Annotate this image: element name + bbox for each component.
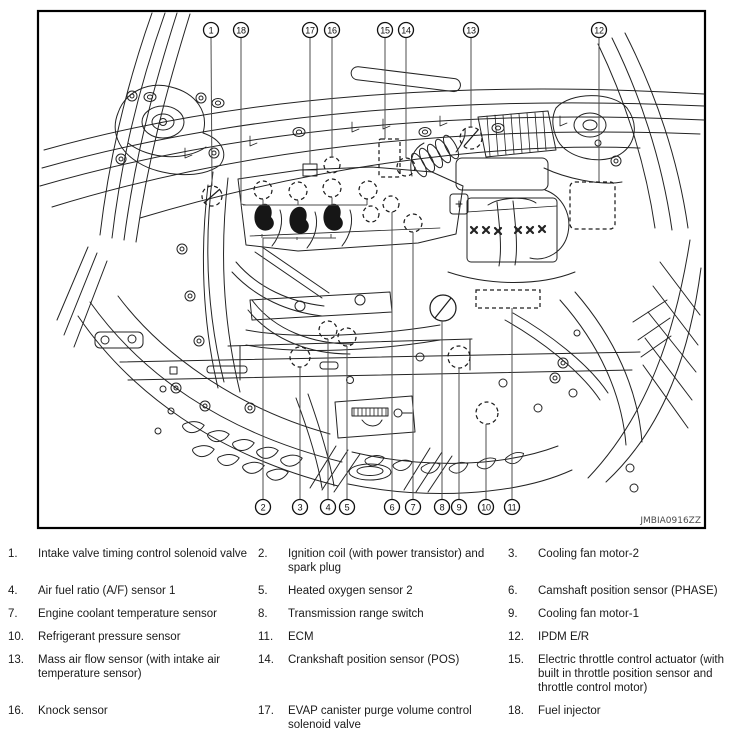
legend-item-number: 2. (258, 547, 288, 561)
svg-text:6: 6 (390, 502, 395, 512)
legend-item-number: 16. (8, 704, 38, 718)
legend-item-number: 6. (508, 584, 538, 598)
callout-10: 10 (479, 500, 494, 515)
callout-13: 13 (464, 23, 479, 38)
legend-item-text: Mass air flow sensor (with intake air te… (38, 653, 248, 681)
svg-text:16: 16 (327, 25, 337, 35)
callout-18: 18 (234, 23, 249, 38)
legend-item-text: Cooling fan motor-2 (538, 547, 734, 561)
legend-item-2: 2.Ignition coil (with power transistor) … (258, 547, 508, 575)
legend-item-text: Knock sensor (38, 704, 248, 718)
callout-9: 9 (452, 500, 467, 515)
callout-17: 17 (303, 23, 318, 38)
svg-text:10: 10 (481, 502, 491, 512)
legend-item-text: Fuel injector (538, 704, 734, 718)
legend-item-text: Intake valve timing control solenoid val… (38, 547, 248, 561)
legend-item-text: Crankshaft position sensor (POS) (288, 653, 498, 667)
legend-item-number: 14. (258, 653, 288, 667)
callout-4: 4 (321, 500, 336, 515)
svg-text:9: 9 (457, 502, 462, 512)
legend-item-3: 3.Cooling fan motor-2 (508, 547, 744, 575)
legend-item-4: 4.Air fuel ratio (A/F) sensor 1 (8, 584, 258, 598)
legend-item-number: 3. (508, 547, 538, 561)
legend-item-8: 8.Transmission range switch (258, 607, 508, 621)
legend-item-text: Ignition coil (with power transistor) an… (288, 547, 498, 575)
svg-text:18: 18 (236, 25, 246, 35)
callout-5: 5 (340, 500, 355, 515)
legend-item-15: 15.Electric throttle control actuator (w… (508, 653, 744, 695)
svg-text:3: 3 (298, 502, 303, 512)
engine-compartment-diagram: 1 18 17 16 15 14 13 12 2 3 4 5 6 7 8 9 1… (36, 9, 708, 530)
legend-item-14: 14.Crankshaft position sensor (POS) (258, 653, 508, 695)
svg-text:12: 12 (594, 25, 604, 35)
legend-item-number: 1. (8, 547, 38, 561)
svg-text:8: 8 (440, 502, 445, 512)
callout-14: 14 (399, 23, 414, 38)
legend-item-text: EVAP canister purge volume control solen… (288, 704, 498, 732)
legend-item-7: 7.Engine coolant temperature sensor (8, 607, 258, 621)
legend-item-number: 18. (508, 704, 538, 718)
callout-15: 15 (378, 23, 393, 38)
legend-item-9: 9.Cooling fan motor-1 (508, 607, 744, 621)
callout-1: 1 (204, 23, 219, 38)
callout-3: 3 (293, 500, 308, 515)
legend: 1.Intake valve timing control solenoid v… (0, 547, 744, 732)
legend-item-number: 7. (8, 607, 38, 621)
legend-item-number: 13. (8, 653, 38, 667)
figure-frame (38, 11, 705, 528)
callout-12: 12 (592, 23, 607, 38)
callout-2: 2 (256, 500, 271, 515)
legend-item-number: 10. (8, 630, 38, 644)
svg-text:1: 1 (209, 25, 214, 35)
legend-item-number: 4. (8, 584, 38, 598)
legend-item-1: 1.Intake valve timing control solenoid v… (8, 547, 258, 575)
legend-item-text: Electric throttle control actuator (with… (538, 653, 734, 695)
legend-item-text: IPDM E/R (538, 630, 734, 644)
legend-item-6: 6.Camshaft position sensor (PHASE) (508, 584, 744, 598)
legend-item-text: Transmission range switch (288, 607, 498, 621)
legend-item-18: 18.Fuel injector (508, 704, 744, 732)
svg-text:7: 7 (411, 502, 416, 512)
legend-item-number: 9. (508, 607, 538, 621)
legend-item-16: 16.Knock sensor (8, 704, 258, 732)
svg-text:15: 15 (380, 25, 390, 35)
svg-text:14: 14 (401, 25, 411, 35)
legend-item-number: 15. (508, 653, 538, 667)
legend-item-13: 13.Mass air flow sensor (with intake air… (8, 653, 258, 695)
callout-8: 8 (435, 500, 450, 515)
legend-item-number: 17. (258, 704, 288, 718)
figure-id-watermark: JMBIA0916ZZ (639, 516, 701, 526)
legend-item-17: 17.EVAP canister purge volume control so… (258, 704, 508, 732)
legend-item-number: 11. (258, 630, 288, 644)
legend-item-number: 5. (258, 584, 288, 598)
legend-item-11: 11.ECM (258, 630, 508, 644)
legend-item-text: ECM (288, 630, 498, 644)
legend-item-text: Engine coolant temperature sensor (38, 607, 248, 621)
legend-item-12: 12.IPDM E/R (508, 630, 744, 644)
svg-text:2: 2 (261, 502, 266, 512)
callout-11: 11 (505, 500, 520, 515)
legend-item-text: Air fuel ratio (A/F) sensor 1 (38, 584, 248, 598)
svg-text:4: 4 (326, 502, 331, 512)
legend-item-text: Camshaft position sensor (PHASE) (538, 584, 734, 598)
legend-item-5: 5.Heated oxygen sensor 2 (258, 584, 508, 598)
svg-text:5: 5 (345, 502, 350, 512)
legend-item-10: 10.Refrigerant pressure sensor (8, 630, 258, 644)
callout-6: 6 (385, 500, 400, 515)
legend-item-number: 12. (508, 630, 538, 644)
callout-16: 16 (325, 23, 340, 38)
legend-item-text: Heated oxygen sensor 2 (288, 584, 498, 598)
legend-item-text: Cooling fan motor-1 (538, 607, 734, 621)
service-manual-page: { "figure": { "watermark": "JMBIA0916ZZ"… (0, 0, 744, 737)
svg-text:11: 11 (508, 502, 517, 512)
svg-text:13: 13 (466, 25, 476, 35)
svg-text:17: 17 (305, 25, 315, 35)
legend-item-number: 8. (258, 607, 288, 621)
callout-7: 7 (406, 500, 421, 515)
legend-item-text: Refrigerant pressure sensor (38, 630, 248, 644)
